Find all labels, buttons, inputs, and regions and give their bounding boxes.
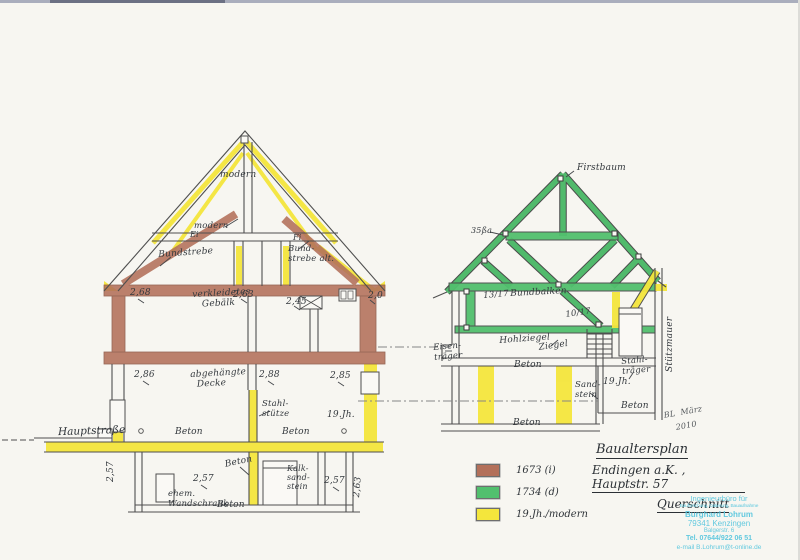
annotation-jh19-left: 19.Jh. bbox=[327, 410, 355, 420]
legend-item-0: 1673 (i) bbox=[476, 459, 588, 481]
stamp-line-1: Ingenieurbüro für bbox=[650, 495, 788, 504]
stamp-line-5: Balgerstr. 6 bbox=[650, 528, 788, 535]
annotation-bundstrebe-alt: Bund- strebe alt. bbox=[288, 245, 334, 264]
annotation-kalksandstein: Kalk- sand- stein bbox=[287, 465, 310, 492]
annotation-dim-257-a: 2,57 bbox=[193, 474, 214, 484]
stamp-line-6: Tel. 07644/922 06 51 bbox=[650, 535, 788, 543]
right-section-door bbox=[619, 308, 642, 356]
left-section-lines bbox=[2, 131, 385, 512]
legend-swatch-1 bbox=[476, 486, 500, 499]
annotation-dim-257-b: 2,57 bbox=[324, 476, 345, 486]
annotation-stahlstuetze-left: Stahl- stütze bbox=[262, 400, 289, 419]
annotation-dim-286: 2,86 bbox=[134, 370, 155, 380]
color-legend: 1673 (i)1734 (d)19.Jh./modern bbox=[476, 459, 588, 525]
annotation-stuetzmauer: Stützmauer bbox=[665, 317, 675, 372]
annotation-dim-263-rot: 2,63 bbox=[352, 476, 364, 498]
annotation-dim-285: 2,85 bbox=[330, 371, 351, 381]
annotation-abgehaengte-decke: abgehängte Decke bbox=[190, 367, 247, 390]
annotation-stahltraeger-right: Stahl- träger bbox=[621, 356, 651, 377]
street-label: Hauptstraße bbox=[58, 424, 126, 438]
legend-label-1: 1734 (d) bbox=[516, 487, 559, 498]
annotation-species-fi: Fi bbox=[293, 234, 302, 243]
annotation-collar-note: 35ßa bbox=[471, 227, 492, 236]
stamp-line-3: Burghard Lohrum bbox=[650, 510, 788, 519]
annotation-dim-20: 2,0 bbox=[368, 291, 383, 301]
legend-item-2: 19.Jh./modern bbox=[476, 503, 588, 525]
annotation-dim-257-rot: 2,57 bbox=[106, 461, 116, 482]
annotation-sandstein: Sand- stein bbox=[575, 381, 601, 400]
annotation-dim-245: 2,45 bbox=[286, 297, 307, 307]
annotation-species-ei: Ei bbox=[190, 231, 199, 240]
annotation-dim-288: 2,88 bbox=[259, 370, 280, 380]
stamp-line-7: e-mail B.Lohrum@t-online.de bbox=[650, 544, 788, 552]
annotation-beton-eg-right: Beton bbox=[282, 427, 310, 437]
right-section-truss-outline bbox=[447, 174, 658, 326]
annotation-jh19-right: 19.Jh. bbox=[603, 377, 631, 387]
annotation-beton-right-mid: Beton bbox=[621, 401, 649, 411]
annotation-firstbaum: Firstbaum bbox=[577, 163, 626, 173]
annotation-modern-roof-top: modern bbox=[220, 170, 256, 180]
title-line-2: Endingen a.K. , Hauptstr. 57 bbox=[592, 463, 745, 493]
legend-item-1: 1734 (d) bbox=[476, 481, 588, 503]
scanned-drawing-sheet: modernmodernBundstrebeEiFiBund- strebe a… bbox=[0, 0, 800, 560]
left-section-yellow bbox=[46, 141, 385, 505]
annotation-dim-268: 2,68 bbox=[130, 288, 151, 298]
annotation-beton-right-floor: Beton bbox=[513, 418, 541, 428]
legend-swatch-0 bbox=[476, 464, 500, 477]
annotation-dim-263: 2,63 bbox=[233, 290, 254, 300]
legend-label-0: 1673 (i) bbox=[516, 465, 556, 476]
annotation-beton-eg-left: Beton bbox=[175, 427, 203, 437]
title-line-1: Baualtersplan bbox=[596, 442, 688, 459]
legend-rows: 1673 (i)1734 (d)19.Jh./modern bbox=[476, 459, 588, 525]
legend-swatch-2 bbox=[476, 508, 500, 521]
annotation-beton-right-slab: Beton bbox=[514, 360, 542, 370]
legend-label-2: 19.Jh./modern bbox=[516, 509, 588, 520]
stamp-line-4: 79341 Kenzingen bbox=[650, 519, 788, 528]
engineer-stamp: Ingenieurbüro für Bauforschung, Datierun… bbox=[650, 495, 788, 551]
annotation-modern-collar: modern bbox=[194, 222, 228, 232]
annotation-eisentraeger: Eisen- träger bbox=[433, 342, 463, 363]
annotation-beton-kg-bottom: Beton bbox=[217, 500, 245, 510]
